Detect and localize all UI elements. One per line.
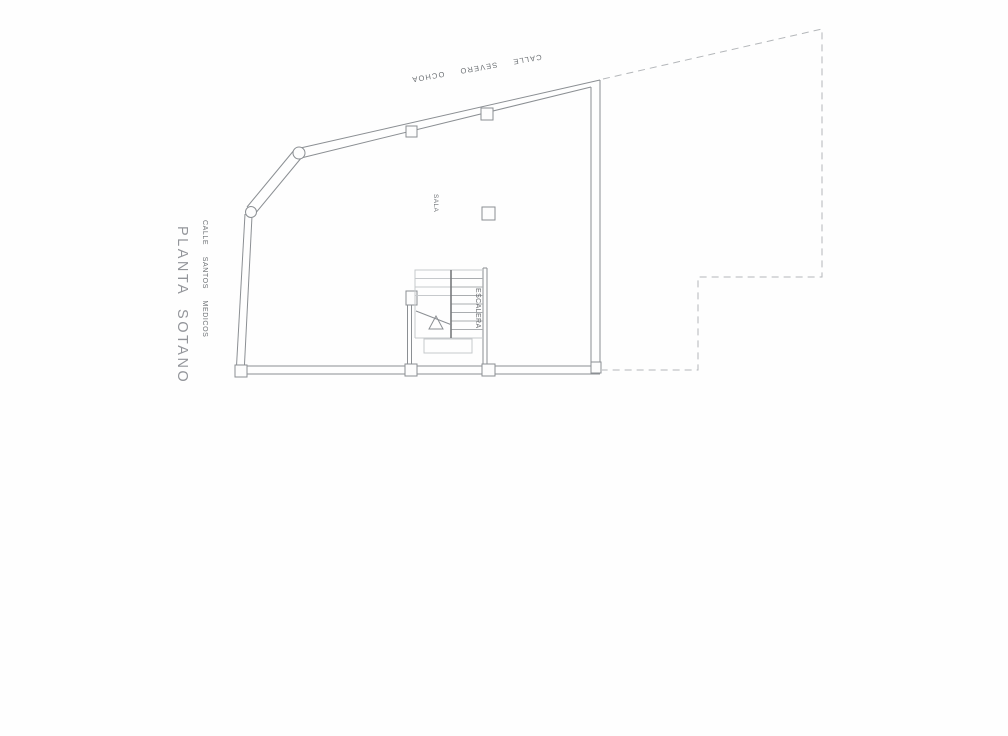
column-top-wall-1: [406, 126, 417, 137]
corner-columns: [246, 147, 306, 218]
stair-landing-rect: [424, 339, 472, 353]
wall-top-outer: [296, 80, 600, 149]
wall-chamfer-inner: [254, 157, 302, 215]
room-label-escalera: ESCALERA: [471, 288, 481, 329]
column-circle-top: [293, 147, 305, 159]
stair-break-line: [416, 311, 452, 325]
wall-left-inner: [244, 216, 252, 374]
column-top-wall-2: [481, 108, 493, 120]
column-sala-interior: [482, 207, 495, 220]
wall-columns: [235, 108, 601, 377]
wall-top-inner: [301, 87, 591, 158]
street-label-left: CALLE SANTOS MEDICOS: [196, 220, 208, 337]
column-bottom-stair-right: [482, 364, 495, 376]
stair-annotations: [416, 311, 452, 329]
stair-direction-arrow-icon: [429, 316, 443, 329]
scanned-plan-page: CALLE SEVERO OCHOA CALLE SANTOS MEDICOS …: [0, 0, 1008, 736]
plan-title: PLANTA SOTANO: [171, 226, 189, 384]
wall-left-outer: [236, 214, 245, 375]
column-circle-left: [246, 207, 257, 218]
column-bottom-right: [591, 362, 601, 373]
wall-chamfer-outer: [247, 149, 295, 207]
exterior-walls: [236, 80, 600, 375]
column-bottom-stair-left: [405, 364, 417, 376]
floor-plan-drawing: [0, 0, 1008, 736]
parcel-boundary-dashed: [602, 29, 822, 370]
column-bottom-left: [235, 365, 247, 377]
boundary-polyline: [602, 29, 822, 370]
room-label-sala: SALA: [428, 194, 438, 212]
